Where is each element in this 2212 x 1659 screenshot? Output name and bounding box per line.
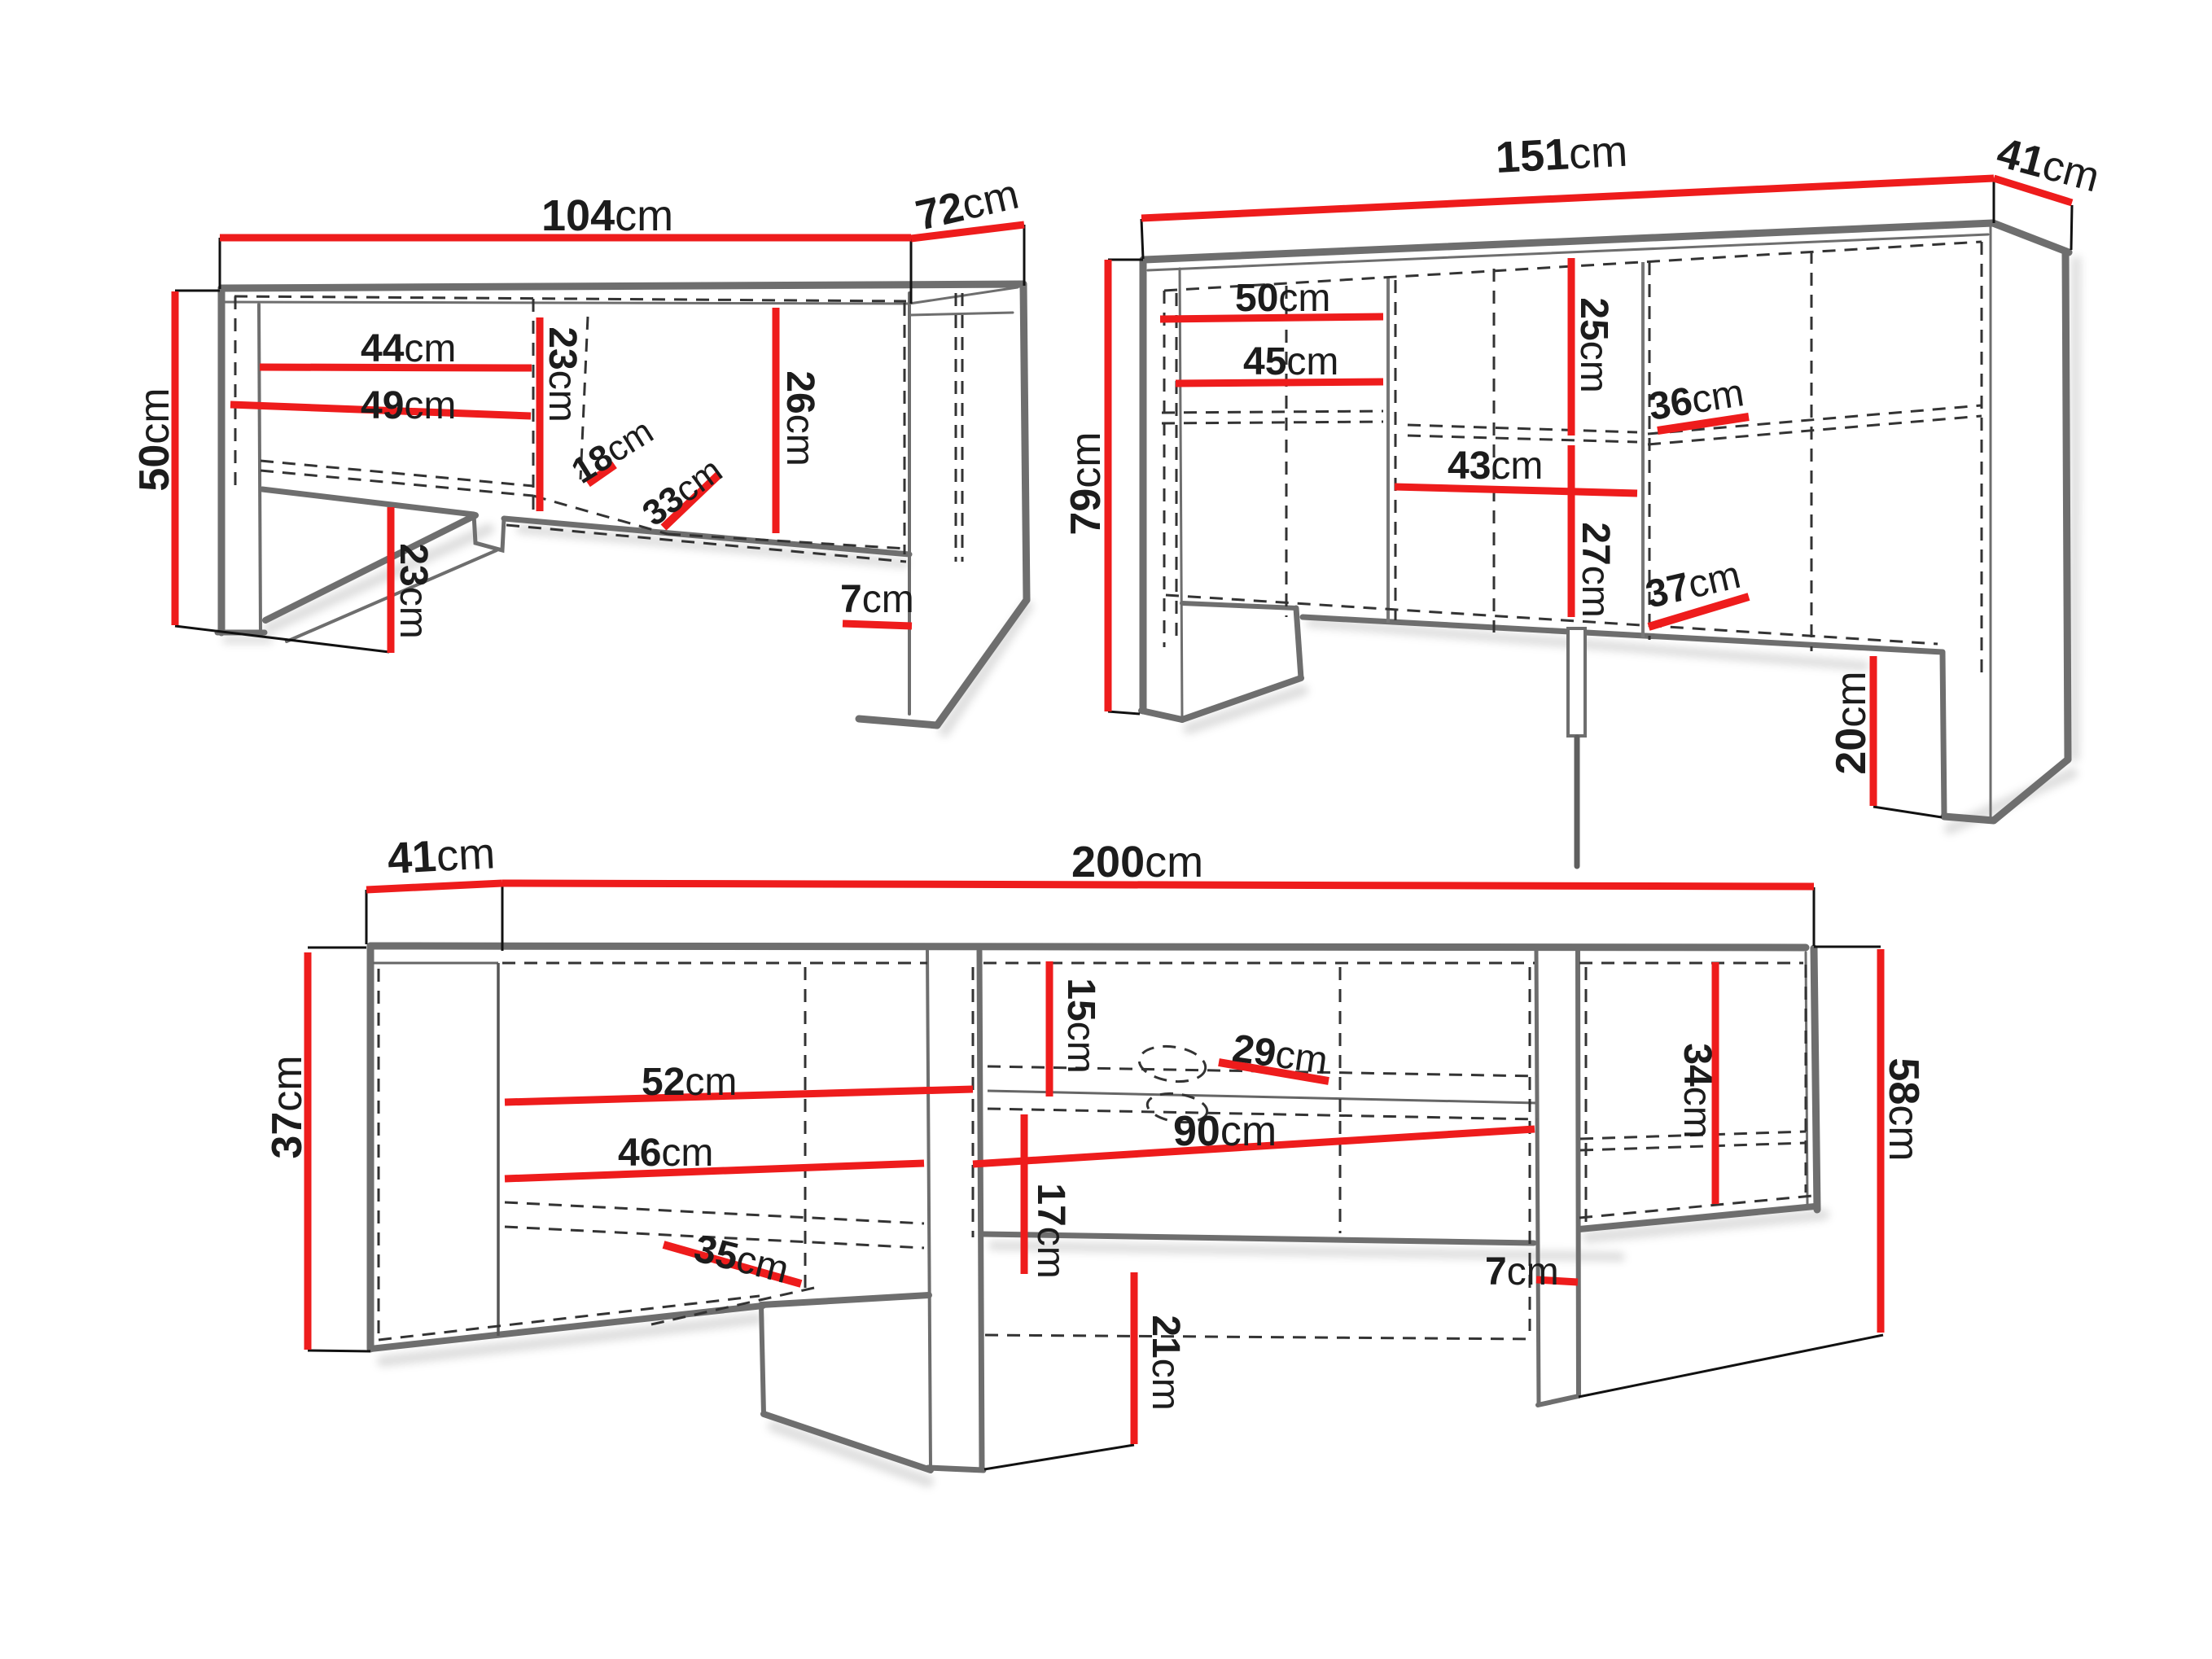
svg-text:50cm: 50cm [1235, 277, 1330, 320]
svg-text:52cm: 52cm [642, 1061, 737, 1104]
svg-text:58cm: 58cm [1880, 1057, 1927, 1161]
svg-text:104cm: 104cm [541, 191, 673, 240]
svg-text:23cm: 23cm [392, 543, 436, 638]
svg-text:7cm: 7cm [840, 578, 914, 621]
svg-text:7cm: 7cm [1485, 1250, 1559, 1293]
svg-text:25cm: 25cm [1573, 297, 1616, 392]
svg-text:27cm: 27cm [1575, 522, 1618, 617]
svg-text:46cm: 46cm [618, 1132, 713, 1175]
svg-text:23cm: 23cm [541, 326, 585, 422]
svg-text:17cm: 17cm [1030, 1183, 1073, 1278]
svg-text:20cm: 20cm [1828, 671, 1875, 774]
svg-text:200cm: 200cm [1071, 838, 1203, 886]
svg-text:26cm: 26cm [779, 370, 822, 466]
svg-text:79cm: 79cm [1062, 431, 1110, 535]
svg-text:44cm: 44cm [361, 327, 456, 370]
svg-text:50cm: 50cm [131, 387, 178, 491]
svg-text:43cm: 43cm [1448, 444, 1543, 488]
svg-text:41cm: 41cm [386, 829, 496, 883]
svg-text:34cm: 34cm [1676, 1043, 1719, 1138]
svg-text:90cm: 90cm [1173, 1108, 1277, 1155]
svg-text:15cm: 15cm [1060, 978, 1103, 1073]
svg-text:49cm: 49cm [361, 384, 456, 427]
svg-text:21cm: 21cm [1145, 1315, 1188, 1410]
svg-text:45cm: 45cm [1243, 340, 1338, 383]
svg-text:151cm: 151cm [1494, 127, 1628, 182]
svg-text:37cm: 37cm [264, 1055, 311, 1158]
